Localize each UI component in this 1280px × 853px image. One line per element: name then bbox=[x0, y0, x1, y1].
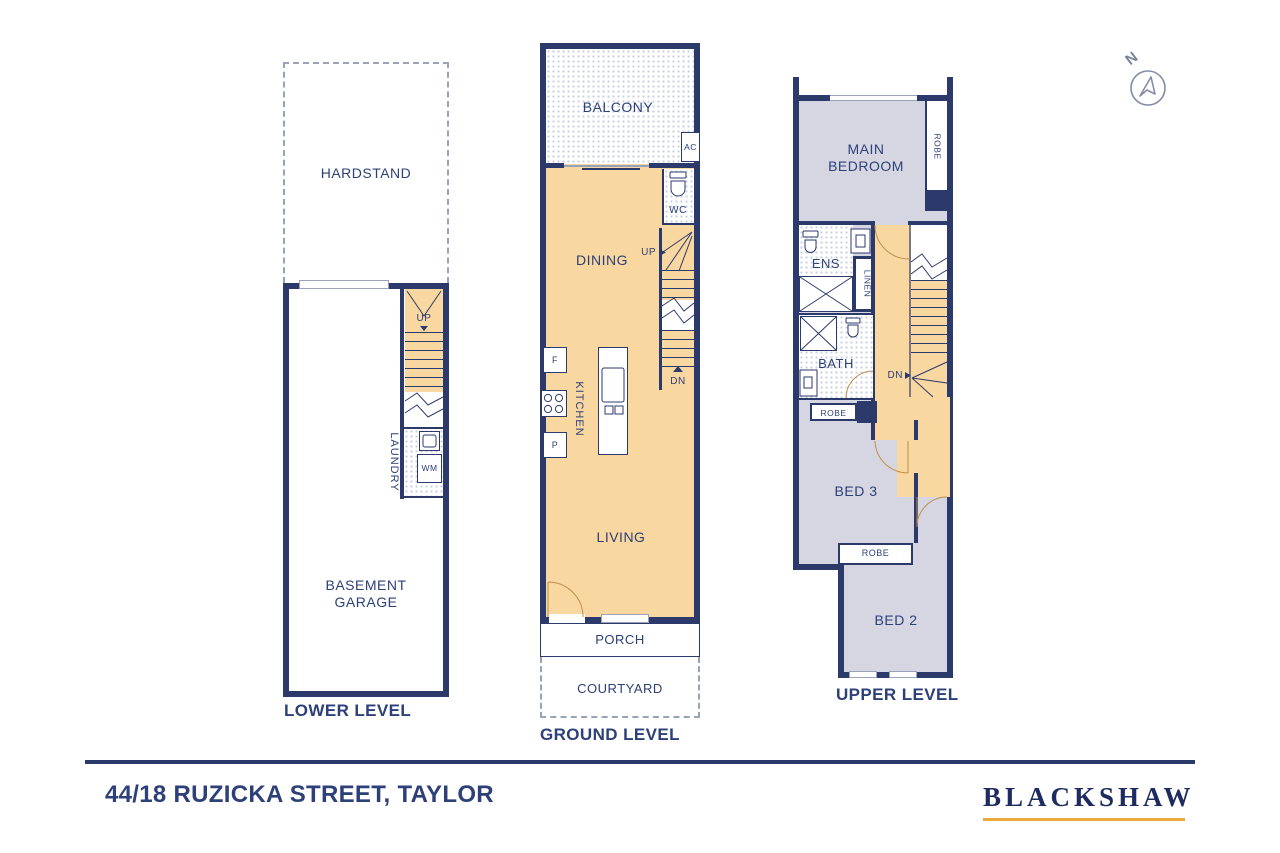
laundry-sink bbox=[419, 431, 440, 451]
footer-divider bbox=[85, 760, 1195, 764]
kitchen-label: KITCHEN bbox=[571, 364, 585, 454]
balcony-label: BALCONY bbox=[548, 99, 688, 116]
ground-level-title: GROUND LEVEL bbox=[540, 725, 680, 745]
wm-label: WM bbox=[417, 463, 442, 473]
ground-stairs-treads-upper bbox=[662, 270, 694, 300]
main-robe-label: ROBE bbox=[930, 117, 943, 177]
lower-up-label: UP bbox=[405, 313, 443, 325]
bath-label: BATH bbox=[799, 356, 873, 372]
bed3-wall-lower bbox=[914, 473, 918, 543]
bed2-label: BED 2 bbox=[846, 612, 946, 629]
main-robe-block bbox=[925, 192, 953, 211]
porch-label: PORCH bbox=[540, 632, 700, 648]
kitchen-island bbox=[598, 347, 628, 455]
ens-label: ENS bbox=[799, 256, 853, 272]
bed3-robe-label: ROBE bbox=[838, 548, 913, 559]
hardstand-label: HARDSTAND bbox=[296, 165, 436, 182]
upper-stairs-treads bbox=[911, 280, 947, 355]
upper-stairs-winder bbox=[911, 355, 947, 397]
compass-icon: N bbox=[1115, 44, 1185, 114]
ensuite-shower bbox=[799, 276, 853, 312]
hall-robe-block bbox=[857, 401, 877, 423]
fridge-label: F bbox=[543, 355, 567, 366]
ground-stairs-treads-lower bbox=[662, 330, 694, 375]
hall-robe-label: ROBE bbox=[810, 408, 857, 418]
lower-level-title: LOWER LEVEL bbox=[284, 701, 411, 721]
bed2-window-left bbox=[849, 671, 877, 678]
main-bedroom-window bbox=[830, 95, 917, 101]
ground-up-label: UP bbox=[624, 247, 656, 259]
property-address: 44/18 RUZICKA STREET, TAYLOR bbox=[105, 781, 494, 809]
ac-label: AC bbox=[681, 142, 700, 152]
garage-door-opening bbox=[299, 280, 389, 289]
living-label: LIVING bbox=[571, 529, 671, 546]
floorplan-page: HARDSTAND UP LAUNDRY WM BASEMENT GARAGE … bbox=[0, 0, 1280, 853]
balcony-slider-track bbox=[564, 165, 649, 167]
upper-dn-label: DN bbox=[873, 370, 903, 382]
bed3-wall-upper bbox=[914, 420, 918, 440]
upper-level-title: UPPER LEVEL bbox=[836, 685, 958, 705]
entry-door-opening bbox=[549, 614, 585, 623]
ground-stairs-wall bbox=[659, 228, 662, 390]
balcony-slider-leaf bbox=[582, 168, 640, 170]
main-bedroom-label: MAIN BEDROOM bbox=[826, 141, 906, 175]
pantry-label: P bbox=[543, 440, 567, 451]
wc-label: WC bbox=[662, 205, 694, 217]
ground-dn-label: DN bbox=[662, 376, 694, 388]
living-window bbox=[601, 614, 649, 623]
compass-north-label: N bbox=[1122, 49, 1141, 69]
ground-stairs-break bbox=[662, 300, 694, 330]
bath-shower bbox=[800, 316, 837, 351]
balcony-wall-right bbox=[649, 163, 694, 168]
lower-stairs-break bbox=[405, 392, 443, 425]
upper-landing-lower bbox=[897, 397, 950, 497]
lower-stairs-treads bbox=[405, 332, 443, 390]
laundry-label: LAUNDRY bbox=[386, 417, 400, 507]
bed2-window-right bbox=[889, 671, 917, 678]
bed3-bottom-wall bbox=[793, 564, 844, 570]
linen-label: LINEN bbox=[860, 254, 873, 314]
agency-logo: BLACKSHAW bbox=[983, 782, 1185, 821]
courtyard-label: COURTYARD bbox=[540, 681, 700, 697]
bed3-label: BED 3 bbox=[806, 483, 906, 500]
upper-stairs-break bbox=[911, 225, 947, 280]
stove bbox=[541, 390, 567, 417]
garage-label: BASEMENT GARAGE bbox=[306, 577, 426, 611]
balcony-wall-left bbox=[546, 163, 564, 168]
